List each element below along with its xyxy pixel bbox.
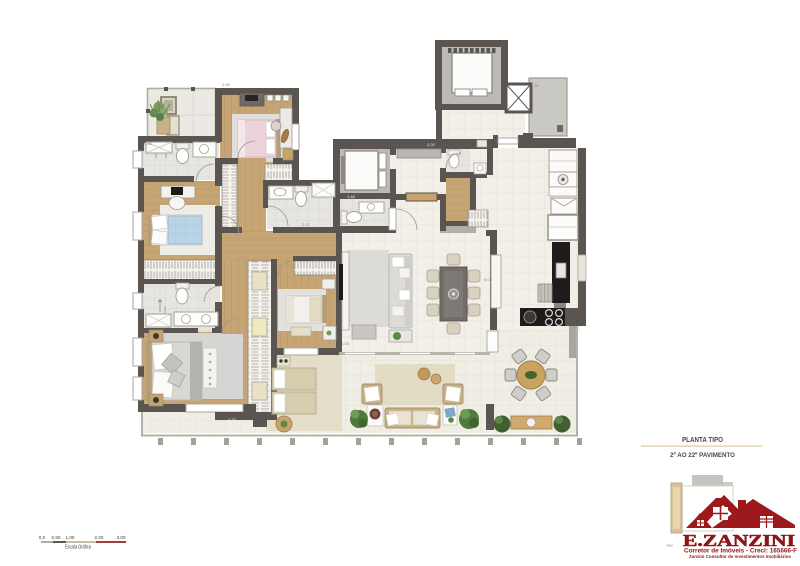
svg-text:0,0: 0,0 (39, 535, 46, 540)
svg-text:PLANTA TIPO: PLANTA TIPO (682, 435, 723, 444)
svg-text:1,48: 1,48 (347, 194, 356, 199)
svg-text:0,50: 0,50 (52, 535, 61, 540)
svg-text:2,90: 2,90 (447, 296, 456, 301)
svg-text:2,00: 2,00 (95, 535, 104, 540)
svg-text:2,90: 2,90 (222, 82, 231, 87)
svg-text:Zanzini Consultor de Investime: Zanzini Consultor de Investimentos Imobi… (689, 554, 792, 559)
svg-text:1,00: 1,00 (66, 535, 75, 540)
svg-text:.: . (329, 466, 330, 471)
svg-text:3,00: 3,00 (117, 535, 126, 540)
svg-text:4,33: 4,33 (228, 417, 237, 422)
svg-text:1,48: 1,48 (144, 141, 153, 146)
svg-text:6,03: 6,03 (484, 277, 493, 282)
svg-text:Escala Gráfica: Escala Gráfica (65, 545, 91, 551)
svg-text:1,20: 1,20 (531, 83, 540, 88)
svg-text:Anr: Anr (666, 543, 674, 548)
svg-text:4,33: 4,33 (341, 341, 350, 346)
svg-text:2,47: 2,47 (302, 222, 311, 227)
svg-text:2,03: 2,03 (427, 142, 436, 147)
svg-text:2º AO 22º PAVIMENTO: 2º AO 22º PAVIMENTO (670, 452, 735, 459)
